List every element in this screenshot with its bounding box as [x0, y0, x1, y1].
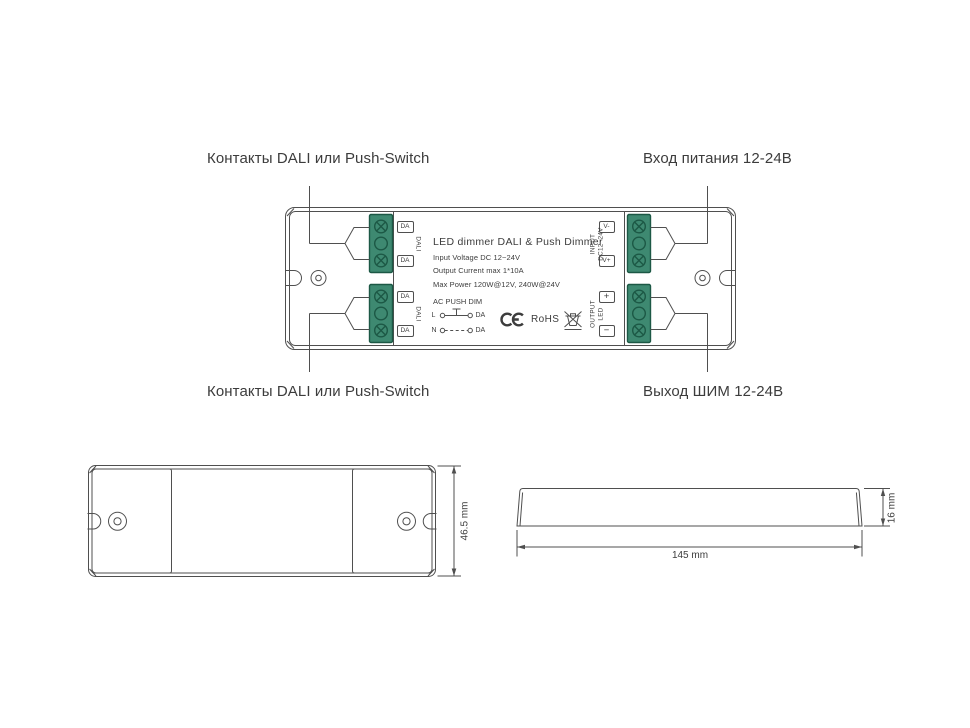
rohs-label: RoHS — [531, 314, 559, 325]
terminal-block-output — [628, 285, 651, 343]
dimension-length: 145 mm — [672, 550, 708, 561]
ce-mark-icon — [501, 314, 522, 326]
height-dimension-lines — [438, 466, 462, 576]
pin-box-plus: + — [599, 291, 615, 303]
callout-bottom-right: Выход ШИМ 12-24В — [643, 383, 783, 400]
leader-top-right — [651, 186, 708, 260]
spec-input-voltage: Input Voltage DC 12~24V — [433, 253, 520, 262]
dali-label-lower: DALI — [414, 306, 421, 321]
wire-label-neutral-da: DA — [476, 327, 486, 334]
mounting-slot-left — [88, 514, 101, 530]
line-art — [0, 0, 970, 728]
push-switch-symbol — [445, 309, 468, 316]
pin-box-da-4: DA — [397, 325, 414, 337]
spec-max-power: Max Power 120W@12V, 240W@24V — [433, 280, 560, 289]
mounting-slot-left — [286, 271, 302, 286]
push-dim-wiring-symbols — [440, 309, 472, 333]
terminal-block-dali-lower — [370, 285, 393, 343]
mounting-slot-right — [720, 271, 735, 286]
screw-hole-left — [109, 512, 127, 530]
terminal-block-input — [628, 215, 651, 273]
screw-hole-left — [311, 271, 326, 286]
bottom-view-inner-case — [92, 469, 432, 573]
pin-box-da-3: DA — [397, 291, 414, 303]
dimension-height: 46.5 mm — [459, 502, 470, 541]
input-label: INPUT — [589, 233, 596, 253]
callout-top-right: Вход питания 12-24В — [643, 150, 792, 167]
pin-box-da-1: DA — [397, 221, 414, 233]
dimension-depth: 16 mm — [886, 492, 897, 523]
device-title: LED dimmer DALI & Push Dimmer — [433, 236, 603, 248]
output-label: OUTPUT — [589, 300, 596, 328]
screw-hole-right — [695, 271, 710, 286]
input-voltage-label: DC12~24V — [597, 227, 604, 260]
side-profile-inner-edges — [520, 493, 859, 527]
corner-chamfers — [90, 466, 435, 576]
callout-top-left: Контакты DALI или Push-Switch — [207, 150, 429, 167]
end-panel-left — [92, 469, 172, 573]
leader-bottom-left — [310, 298, 370, 373]
screw-hole-right — [398, 512, 416, 530]
side-view — [517, 489, 890, 557]
wire-label-live: L — [432, 312, 436, 319]
weee-icon — [565, 312, 582, 330]
wire-label-live-da: DA — [476, 312, 486, 319]
output-led-label: LED — [597, 307, 604, 320]
terminal-block-dali-upper — [370, 215, 393, 273]
dali-label-upper: DALI — [414, 236, 421, 251]
end-panel-right — [353, 469, 433, 573]
push-dim-heading: AC PUSH DIM — [433, 297, 482, 306]
callout-bottom-left: Контакты DALI или Push-Switch — [207, 383, 429, 400]
bottom-view-outer-case — [89, 466, 436, 577]
pin-box-minus: − — [599, 325, 615, 337]
leader-top-left — [310, 186, 370, 260]
bottom-view — [88, 466, 462, 577]
leader-bottom-right — [651, 298, 708, 373]
wire-label-neutral: N — [432, 327, 437, 334]
spec-sheet: Контакты DALI или Push-Switch Вход питан… — [0, 0, 970, 728]
spec-output-current: Output Current max 1*10A — [433, 266, 524, 275]
mounting-slot-right — [423, 514, 436, 530]
pin-box-da-2: DA — [397, 255, 414, 267]
side-profile-outline — [517, 489, 862, 527]
